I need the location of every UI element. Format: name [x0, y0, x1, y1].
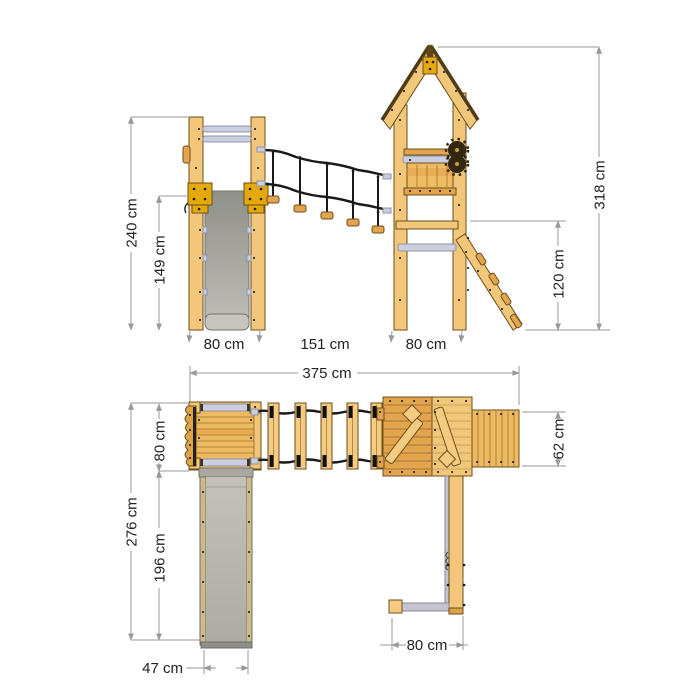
- dim-ladder-width: 80 cm: [204, 336, 245, 353]
- dim-total-length: 375 cm: [302, 365, 351, 382]
- tower-roof: [382, 45, 478, 129]
- dim-ladder-height: 240 cm: [123, 198, 140, 247]
- ladder-handle: [183, 146, 190, 163]
- plan-view: 375 cm: [123, 365, 567, 677]
- tower-right-post: [453, 93, 466, 330]
- dim-ramp-depth: 62 cm: [550, 419, 567, 460]
- dim-tower-height: 318 cm: [591, 160, 608, 209]
- side-ladder-slide-module: [183, 117, 268, 330]
- dim-slide-length: 196 cm: [151, 533, 168, 582]
- plan-rope-bridge: [251, 403, 389, 469]
- dim-tower-width: 80 cm: [406, 336, 447, 353]
- dim-total-depth: 276 cm: [123, 497, 140, 546]
- dim-bridge-span: 151 cm: [300, 336, 349, 353]
- plan-tower-roof: [377, 397, 472, 476]
- climbing-tower-side: [382, 45, 522, 330]
- ladder-top-rung: [203, 126, 251, 132]
- side-elevation-view: 240 cm 149 cm 318 cm 120 cm 80 cm 151 cm…: [123, 45, 610, 353]
- slide-side: [203, 191, 251, 330]
- plan-platform: [185, 402, 261, 470]
- plan-ramp-post: [389, 476, 464, 614]
- dim-ramp-span: 80 cm: [407, 637, 448, 654]
- bridge-hanging-steps: [267, 196, 384, 233]
- dim-slide-height: 149 cm: [151, 235, 168, 284]
- ladder-left-post: [189, 117, 203, 330]
- dim-slide-width: 47 cm: [142, 660, 183, 677]
- rope-bridge-side: [257, 147, 391, 233]
- plan-ramp: [472, 410, 519, 467]
- plan-slide: [199, 468, 253, 648]
- plan-climbing-wall: [185, 406, 196, 466]
- dim-platform-depth: 80 cm: [151, 421, 168, 462]
- playset-dimension-diagram: 240 cm 149 cm 318 cm 120 cm 80 cm 151 cm…: [0, 0, 700, 700]
- dim-ramp-height: 120 cm: [550, 249, 567, 298]
- ladder-second-rung: [203, 136, 251, 142]
- tower-left-post: [394, 105, 407, 330]
